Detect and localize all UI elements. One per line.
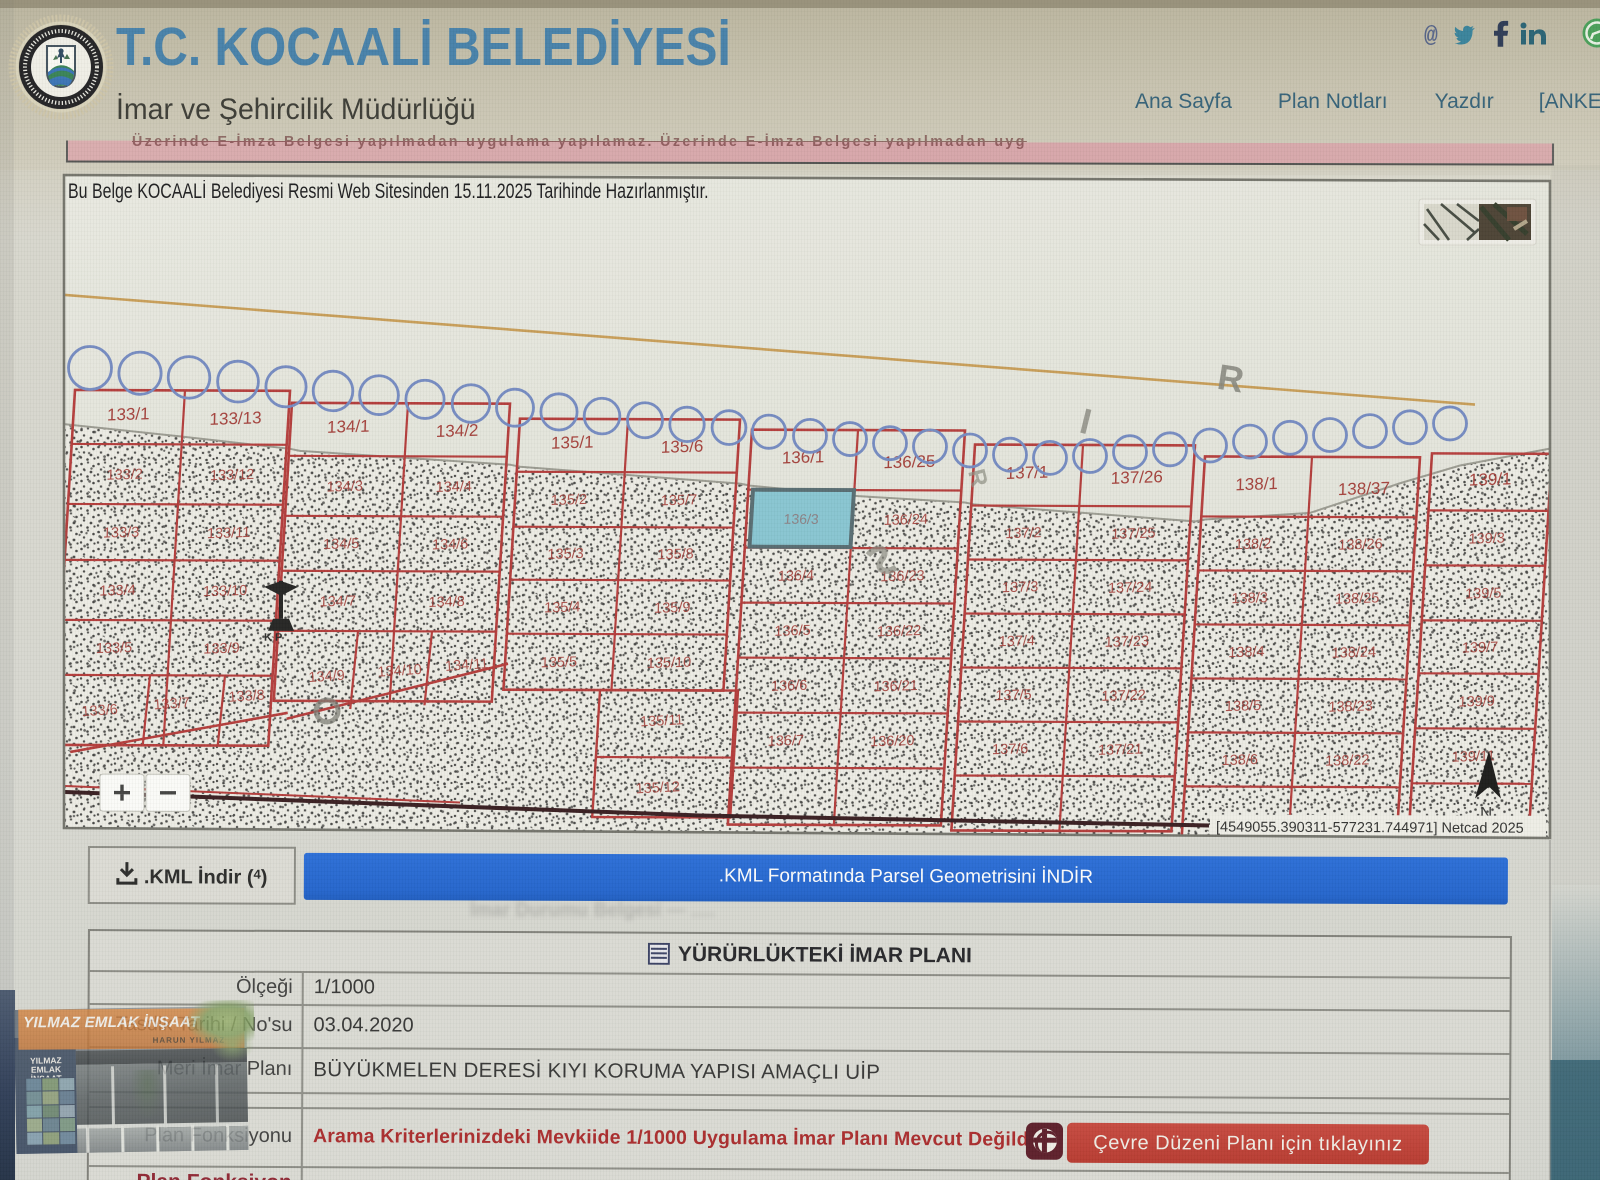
svg-text:139/5: 139/5: [1465, 586, 1502, 603]
svg-text:133/2: 133/2: [106, 467, 143, 484]
svg-text:137/23: 137/23: [1104, 633, 1149, 650]
svg-text:138/26: 138/26: [1338, 536, 1383, 553]
svg-text:137/4: 137/4: [998, 633, 1035, 650]
svg-text:136/4: 136/4: [778, 568, 815, 585]
svg-text:133/9: 133/9: [203, 640, 240, 657]
svg-text:136/24: 136/24: [883, 512, 928, 529]
svg-text:139/9: 139/9: [1458, 694, 1495, 711]
svg-text:133/8: 133/8: [228, 687, 265, 705]
svg-text:136/3: 136/3: [783, 511, 819, 527]
svg-text:138/1: 138/1: [1235, 474, 1278, 494]
svg-text:135/5: 135/5: [541, 654, 578, 671]
svg-text:133/12: 133/12: [210, 467, 255, 484]
svg-text:135/10: 135/10: [647, 655, 692, 672]
svg-text:133/10: 133/10: [203, 583, 248, 600]
svg-text:135/8: 135/8: [657, 546, 694, 563]
svg-text:134/9: 134/9: [308, 668, 345, 686]
svg-text:135/7: 135/7: [661, 492, 698, 509]
svg-text:137/25: 137/25: [1111, 526, 1156, 543]
svg-text:137/3: 137/3: [1002, 579, 1039, 596]
svg-text:137/2: 137/2: [1005, 525, 1042, 542]
svg-text:137/22: 137/22: [1101, 687, 1146, 704]
svg-text:138/24: 138/24: [1331, 644, 1376, 661]
svg-text:138/5: 138/5: [1225, 698, 1262, 715]
svg-text:135/9: 135/9: [654, 600, 691, 617]
svg-text:137/5: 137/5: [995, 687, 1032, 704]
svg-text:138/6: 138/6: [1221, 752, 1258, 769]
svg-text:K P: K P: [264, 632, 282, 644]
svg-text:138/22: 138/22: [1325, 752, 1370, 769]
svg-text:138/37: 138/37: [1338, 479, 1391, 500]
svg-text:133/7: 133/7: [153, 695, 190, 713]
svg-text:134/11: 134/11: [445, 656, 489, 675]
svg-text:136/20: 136/20: [870, 733, 915, 750]
svg-text:134/10: 134/10: [377, 662, 422, 681]
svg-text:137/24: 137/24: [1108, 580, 1153, 597]
svg-text:139/3: 139/3: [1468, 531, 1505, 548]
svg-text:134/6: 134/6: [432, 536, 469, 553]
svg-text:138/23: 138/23: [1328, 698, 1373, 715]
svg-text:135/11: 135/11: [640, 712, 684, 730]
svg-text:133/11: 133/11: [207, 525, 251, 542]
svg-text:133/4: 133/4: [99, 583, 136, 600]
svg-text:139/1: 139/1: [1469, 469, 1512, 489]
svg-text:136/21: 136/21: [873, 678, 918, 695]
svg-text:137/6: 137/6: [992, 741, 1029, 758]
svg-text:@: @: [1424, 23, 1438, 49]
svg-text:138/2: 138/2: [1235, 536, 1272, 553]
svg-text:135/2: 135/2: [551, 492, 588, 509]
svg-text:135/3: 135/3: [547, 546, 584, 563]
svg-text:133/5: 133/5: [96, 640, 133, 657]
svg-text:137/26: 137/26: [1111, 467, 1164, 488]
svg-text:134/8: 134/8: [428, 594, 465, 611]
svg-text:133/1: 133/1: [107, 404, 150, 424]
svg-text:138/4: 138/4: [1228, 644, 1265, 661]
svg-text:134/5: 134/5: [323, 536, 360, 553]
svg-text:138/25: 138/25: [1335, 590, 1380, 607]
svg-text:136/6: 136/6: [771, 678, 808, 695]
svg-text:134/3: 134/3: [326, 478, 363, 495]
svg-text:137/21: 137/21: [1098, 741, 1143, 758]
svg-text:136/22: 136/22: [877, 623, 922, 640]
svg-text:134/4: 134/4: [435, 479, 472, 496]
svg-text:136/5: 136/5: [774, 623, 811, 640]
svg-text:133/3: 133/3: [103, 525, 140, 542]
svg-text:135/4: 135/4: [544, 599, 581, 616]
svg-text:134/7: 134/7: [319, 593, 356, 610]
svg-text:135/12: 135/12: [635, 779, 680, 797]
svg-text:135/1: 135/1: [551, 432, 594, 452]
svg-text:134/1: 134/1: [327, 417, 370, 437]
svg-text:136/7: 136/7: [767, 733, 804, 750]
svg-text:[4549055.390311-577231.744971]: [4549055.390311-577231.744971] Netcad 20…: [1216, 820, 1524, 837]
svg-text:134/2: 134/2: [436, 421, 479, 441]
svg-text:139/7: 139/7: [1462, 640, 1499, 657]
svg-text:133/13: 133/13: [209, 408, 262, 429]
svg-text:133/6: 133/6: [81, 702, 118, 720]
svg-text:138/3: 138/3: [1231, 590, 1268, 607]
